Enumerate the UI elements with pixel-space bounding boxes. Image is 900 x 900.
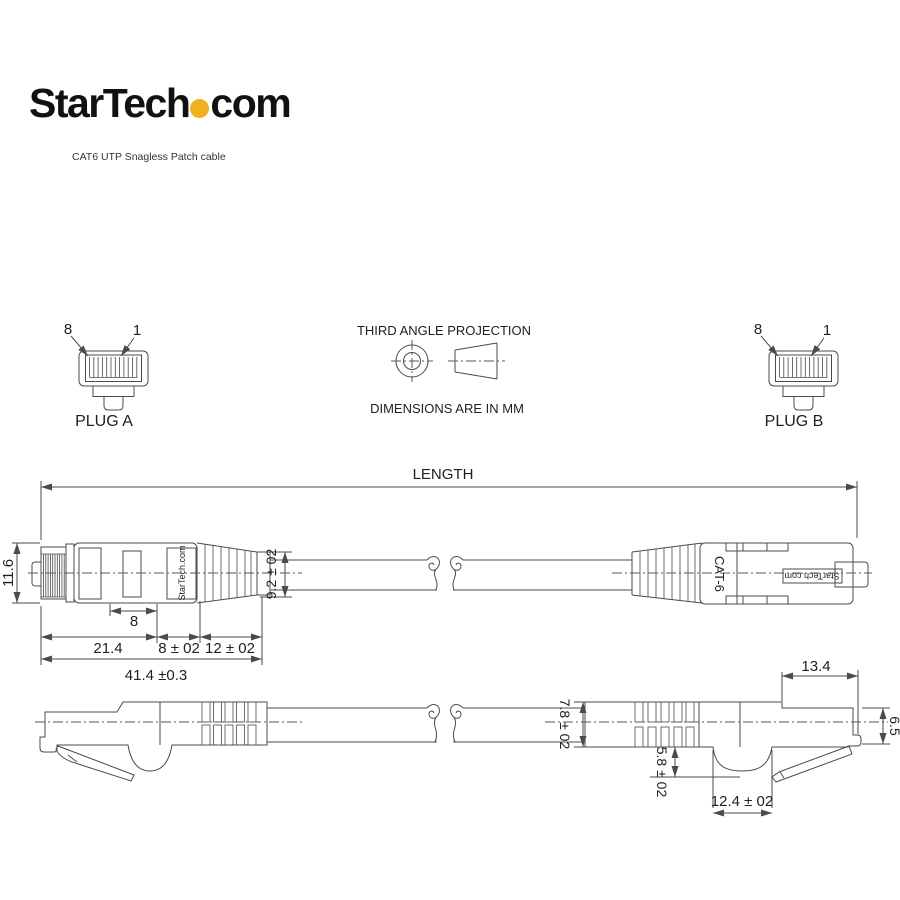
- length-dim-text: LENGTH: [413, 466, 474, 483]
- plug-b-pin1-label: 1: [823, 322, 831, 339]
- lower-cable-left-segment: [267, 708, 437, 742]
- plug-b-caption: PLUG B: [765, 413, 824, 430]
- left-body-slot-2: [123, 551, 141, 597]
- right-side-outline: [585, 702, 861, 771]
- plug-a-boot-step: [93, 386, 134, 397]
- plug-a-caption: PLUG A: [75, 413, 133, 430]
- cable-right-segment: [453, 560, 632, 590]
- top-view-cable: [270, 556, 632, 590]
- cable-break-left: [427, 556, 439, 590]
- plug-a-pin1-leader: [121, 338, 134, 356]
- right-side-latch: [772, 746, 852, 782]
- projection-crosshair: [391, 340, 433, 382]
- projection-title: THIRD ANGLE PROJECTION: [357, 323, 531, 338]
- right-bottom-notch-dividers: [743, 596, 767, 604]
- plug-a-pin8-label: 8: [64, 321, 72, 338]
- latch-depth-dim-text: 5.8 ± 02: [654, 747, 670, 798]
- nose-height-dim-text: 6.5: [887, 716, 900, 736]
- body-length-dim-text: 21.4: [93, 640, 122, 657]
- plug-b-pin1-leader: [811, 338, 824, 356]
- left-plug-nose: [32, 562, 41, 586]
- plug-a-front-view: 8 1 PLUG A: [64, 321, 148, 430]
- cat6-label: CAT-6: [712, 556, 727, 592]
- side-view-right-connector: [545, 702, 888, 782]
- overall-dim-text: 41.4 ±0.3: [125, 667, 187, 684]
- units-note: DIMENSIONS ARE IN MM: [370, 401, 524, 416]
- lower-cable-break-left: [427, 704, 439, 742]
- left-pin-hatch: [41, 554, 66, 597]
- left-side-latch: [56, 746, 134, 781]
- lower-cable-break-right: [451, 704, 463, 742]
- length-dimension: LENGTH: [41, 466, 857, 540]
- left-side-ribs: [202, 702, 256, 745]
- projection-block: THIRD ANGLE PROJECTION DIMENSIONS ARE IN…: [357, 323, 531, 416]
- side-view-dimensions: 7.8 ± 02 5.8 ± 02 12.4 ± 02 13.4 6.5: [557, 658, 900, 813]
- right-latch-fold: [780, 772, 784, 778]
- cavity-dim-text: 12.4 ± 02: [711, 793, 773, 810]
- plug-a-cable-stub: [104, 397, 123, 411]
- cable-break-right: [451, 556, 463, 590]
- nose-dim-text: 13.4: [801, 658, 830, 675]
- top-view-right-connector: CAT-6 StarTech.com: [612, 543, 872, 604]
- right-body-top-notches: [726, 543, 788, 551]
- plug-b-pins: [780, 357, 828, 378]
- plug-b-boot-step: [783, 386, 824, 397]
- nose-extension-lines: [782, 670, 858, 734]
- nose-height-extension-lines: [862, 708, 890, 744]
- side-view-cable: [267, 704, 585, 742]
- side-view-left-connector: [35, 702, 302, 781]
- cable-height-dim-text: 7.8 ± 02: [557, 699, 573, 750]
- length-extension-lines: [41, 481, 857, 540]
- boot-height-dim-text: 9.2 ± 02: [263, 549, 279, 600]
- right-side-parting-lines: [699, 702, 740, 747]
- plug-a-pin1-label: 1: [133, 322, 141, 339]
- slot-dim-text: 8: [130, 613, 138, 630]
- cable-left-segment: [270, 560, 437, 590]
- plug-b-cable-stub: [794, 397, 813, 411]
- right-side-ribs: [635, 702, 694, 747]
- drawing-sheet: StarTechcom CAT6 UTP Snagless Patch cabl…: [0, 0, 900, 900]
- relief-dim-text: 8 ± 02: [158, 640, 200, 657]
- plug-b-pin8-label: 8: [754, 321, 762, 338]
- right-body-bottom-notches: [726, 596, 788, 604]
- technical-drawing: 8 1 PLUG A 8 1: [0, 0, 900, 900]
- boot-length-dim-text: 12 ± 02: [205, 640, 255, 657]
- plug-b-front-view: 8 1 PLUG B: [754, 321, 838, 430]
- height-dim-text: 11.6: [0, 559, 17, 587]
- right-top-notch-dividers: [743, 543, 767, 551]
- plug-a-pins: [90, 357, 138, 378]
